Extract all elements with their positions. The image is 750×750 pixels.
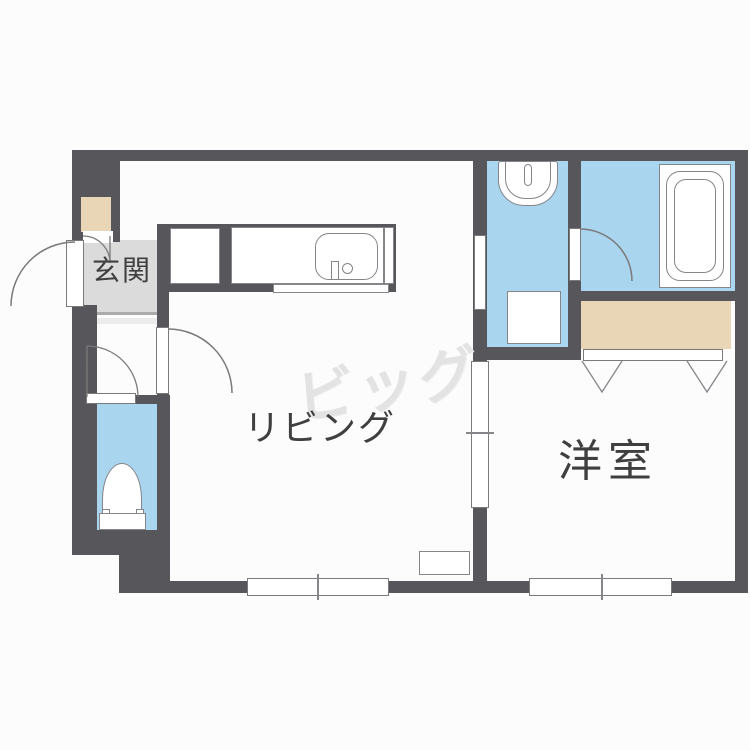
- western-label: 洋室: [528, 440, 688, 484]
- closet-door-track: [583, 349, 723, 361]
- kitchen-counter-end: [384, 227, 394, 284]
- shoe-cabinet: [81, 197, 111, 232]
- kitchen-faucet-knob: [342, 263, 353, 274]
- wall-toilet-right: [157, 395, 170, 545]
- washroom-sliding-door: [474, 235, 486, 310]
- bathtub-basin: [674, 179, 716, 273]
- living-door-arc: [168, 329, 232, 393]
- toilet-door-leaf: [86, 393, 136, 404]
- living-door-leaf: [156, 327, 169, 394]
- genkan-label: 玄関: [84, 257, 160, 285]
- wall-top: [72, 150, 748, 161]
- closet-area: [581, 301, 731, 349]
- living-outlet-box: [419, 551, 470, 575]
- closet-folding-door-right: [687, 361, 727, 392]
- wall-right: [735, 150, 748, 593]
- western-window-tick: [601, 574, 603, 600]
- washbasin-faucet: [524, 164, 532, 186]
- kitchen-faucet-stem: [331, 261, 339, 280]
- closet-folding-door-left: [582, 361, 622, 392]
- washing-machine-pan: [507, 291, 561, 344]
- wall-wash-bottom: [473, 347, 581, 360]
- kitchen-counter-front: [273, 284, 389, 293]
- bathroom-door-leaf: [569, 228, 581, 281]
- entrance-alcove: [83, 231, 113, 243]
- wall-left: [72, 305, 97, 542]
- kitchen-cabinet: [170, 228, 220, 284]
- living-western-sliding-door: [471, 361, 489, 508]
- entrance-door-leaf: [66, 240, 84, 307]
- floor-plan: 玄関 リビング 洋室 ビッグ: [0, 0, 750, 750]
- living-label: リビング: [235, 410, 405, 446]
- toilet-tank: [99, 513, 146, 530]
- wall-bath-bottom: [568, 291, 735, 301]
- sliding-door-tick: [466, 432, 494, 434]
- living-window-tick: [317, 574, 319, 600]
- wall-step-a: [72, 530, 119, 555]
